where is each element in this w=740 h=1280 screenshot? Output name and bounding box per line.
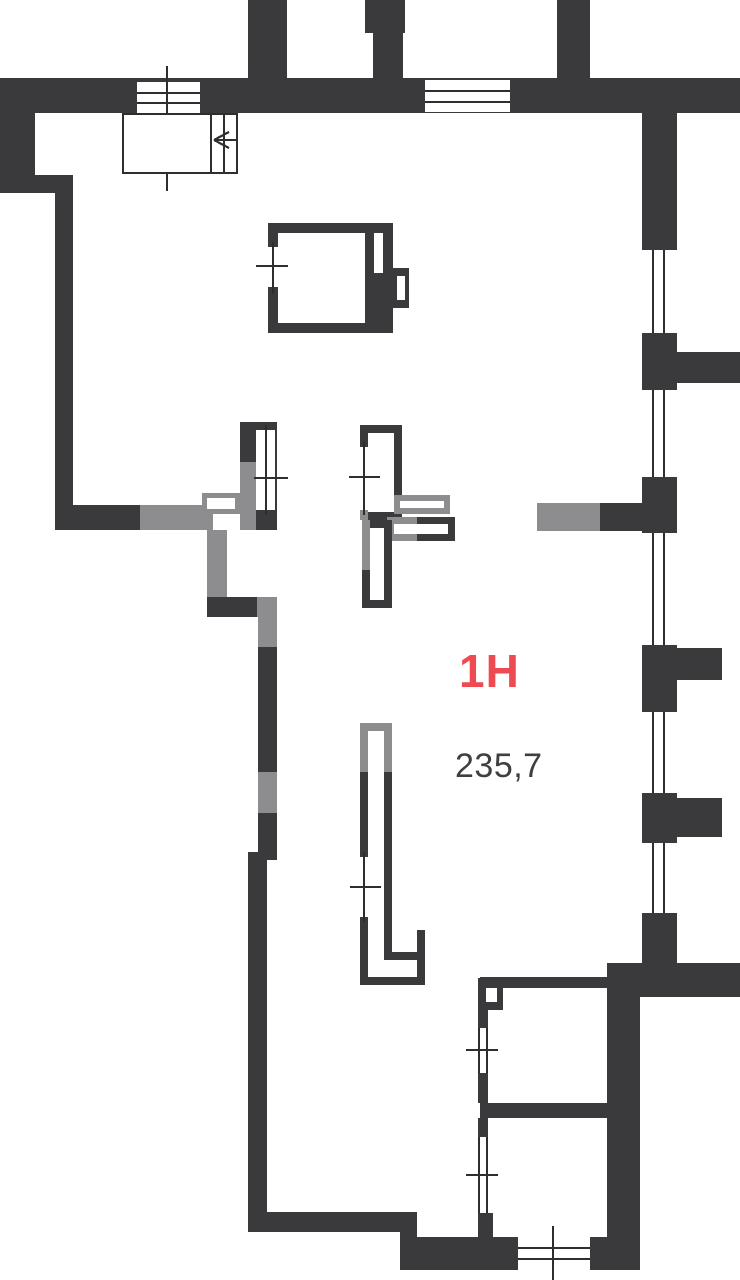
shaft-center: [349, 425, 455, 608]
unit-number-label: 1H: [459, 648, 520, 694]
partition-lower: [350, 723, 425, 985]
shaft-left: [202, 422, 288, 530]
perimeter-walls: [0, 0, 740, 1270]
floor-plan: 1H 235,7: [0, 0, 740, 1280]
utility-room: [256, 223, 409, 333]
unit-area-value: 235,7: [455, 749, 543, 783]
storage-rooms: [466, 977, 607, 1237]
bottom-facade-window: [518, 1226, 590, 1280]
right-facade-walls: [537, 113, 740, 965]
floor-plan-drawing: [0, 0, 740, 1280]
stairs: [123, 113, 238, 173]
